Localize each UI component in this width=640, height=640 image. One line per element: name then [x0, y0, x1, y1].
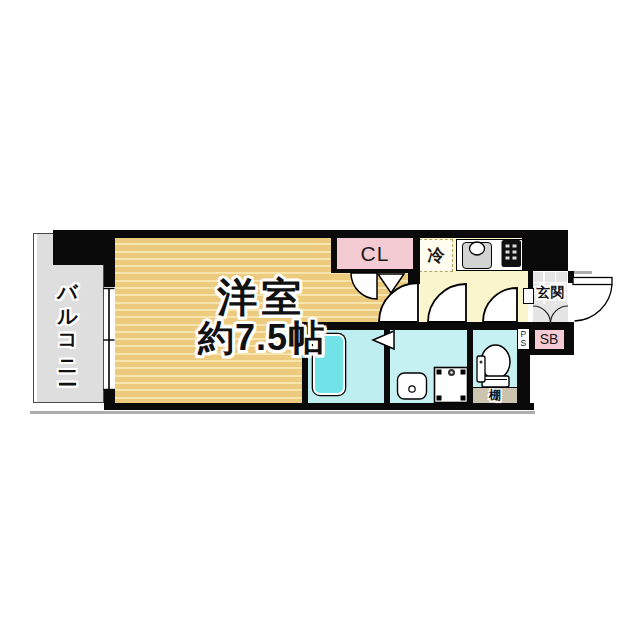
wall-top — [53, 230, 555, 238]
wall-bottom — [104, 403, 534, 410]
closet-label: CL — [337, 238, 413, 269]
wall-entrance-right — [568, 271, 574, 283]
shelf-label: 棚 — [473, 388, 517, 402]
wall-closet-bottom — [337, 269, 413, 273]
kitchen-sink-icon — [462, 242, 492, 269]
refrigerator-label: 冷 — [419, 239, 453, 272]
right-shadow-line — [574, 271, 592, 274]
floor-plan: バルコニー 洋室 約7.5帖 CL 冷 玄関 SB P S 棚 — [0, 0, 640, 640]
entrance-door-swing-arc — [575, 285, 613, 322]
window-backing — [104, 287, 115, 389]
shoe-box-label: SB — [535, 330, 564, 349]
pipe-space-letter-s: S — [520, 339, 526, 348]
wall-room-kitchen-stub — [408, 273, 420, 284]
main-room-label-line1: 洋室 — [115, 276, 408, 318]
main-room-label-line2: 約7.5帖 — [115, 318, 408, 358]
entrance-label: 玄関 — [531, 285, 571, 301]
main-room-door-leaf — [409, 284, 418, 322]
bottom-shadow-line — [30, 411, 535, 414]
balcony-label: バルコニー — [52, 258, 82, 388]
wall-left-lower — [104, 388, 115, 404]
wall-left-upper — [104, 263, 115, 289]
wall-toilet-right — [517, 350, 530, 403]
entrance-door-leaf — [573, 278, 612, 285]
wall-top-right-block — [522, 230, 568, 271]
pipe-space-label: P S — [517, 328, 530, 350]
main-room-label: 洋室 約7.5帖 — [115, 276, 408, 358]
